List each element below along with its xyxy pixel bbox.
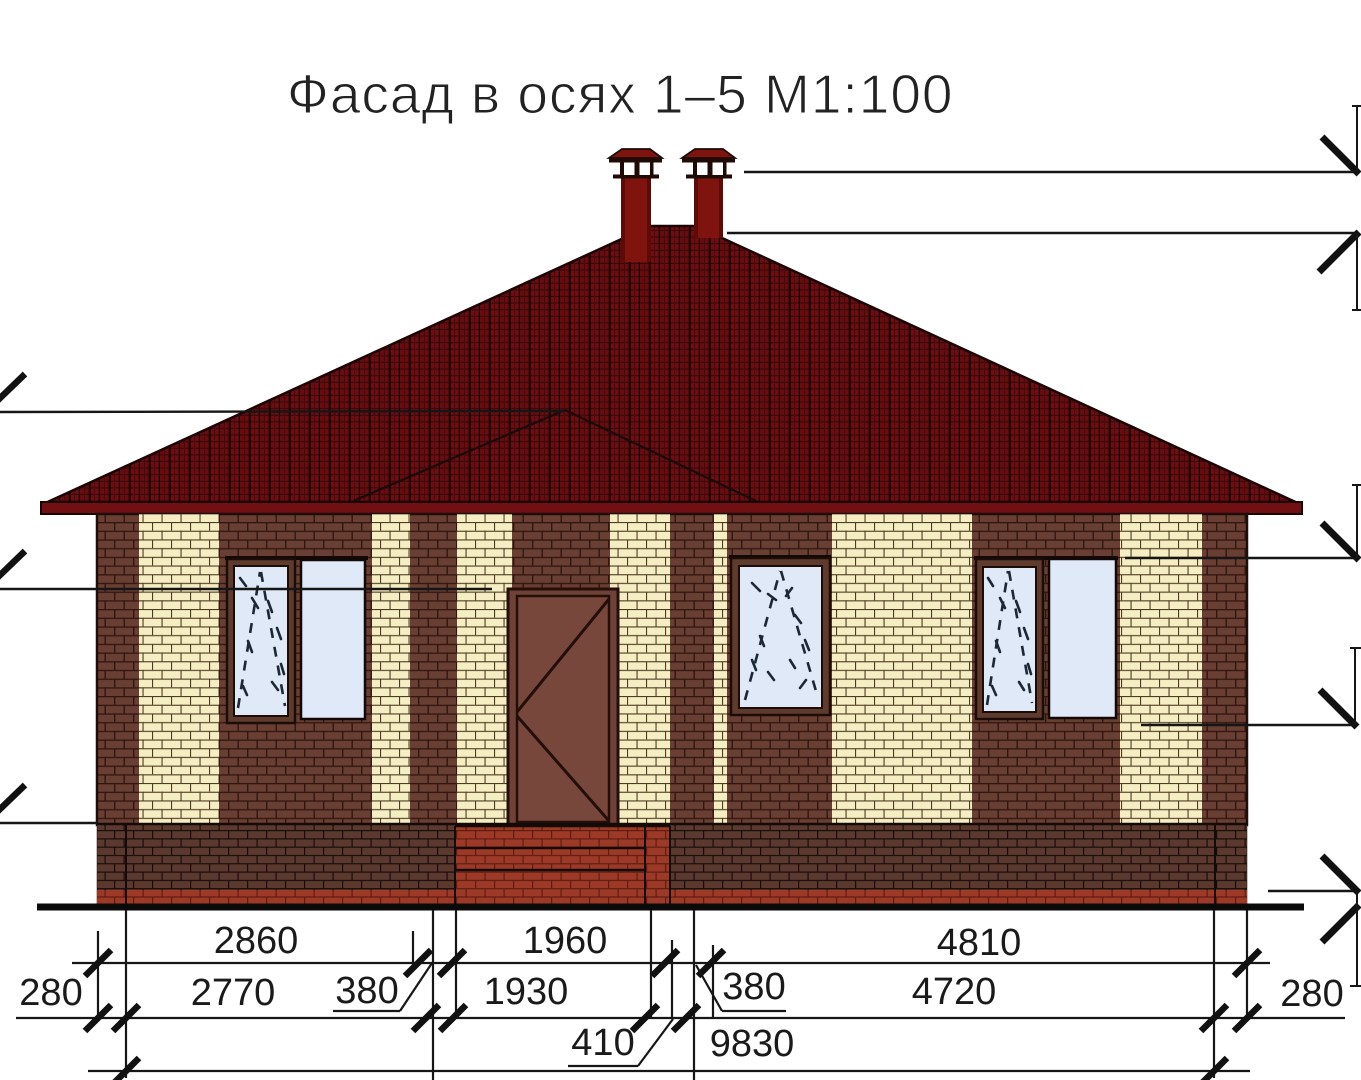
svg-text:380: 380 [722,966,785,1008]
svg-text:280: 280 [1280,973,1343,1015]
svg-text:2770: 2770 [191,972,276,1014]
svg-text:380: 380 [335,970,398,1012]
svg-text:9830: 9830 [710,1023,795,1065]
svg-text:4720: 4720 [912,971,997,1013]
svg-text:Фасад в осях 1–5 М1:100: Фасад в осях 1–5 М1:100 [287,63,954,125]
svg-text:410: 410 [571,1022,634,1064]
svg-text:4810: 4810 [937,922,1022,964]
svg-text:1960: 1960 [523,920,608,962]
svg-text:1930: 1930 [484,971,569,1013]
svg-text:280: 280 [19,972,82,1014]
svg-text:2860: 2860 [214,920,299,962]
